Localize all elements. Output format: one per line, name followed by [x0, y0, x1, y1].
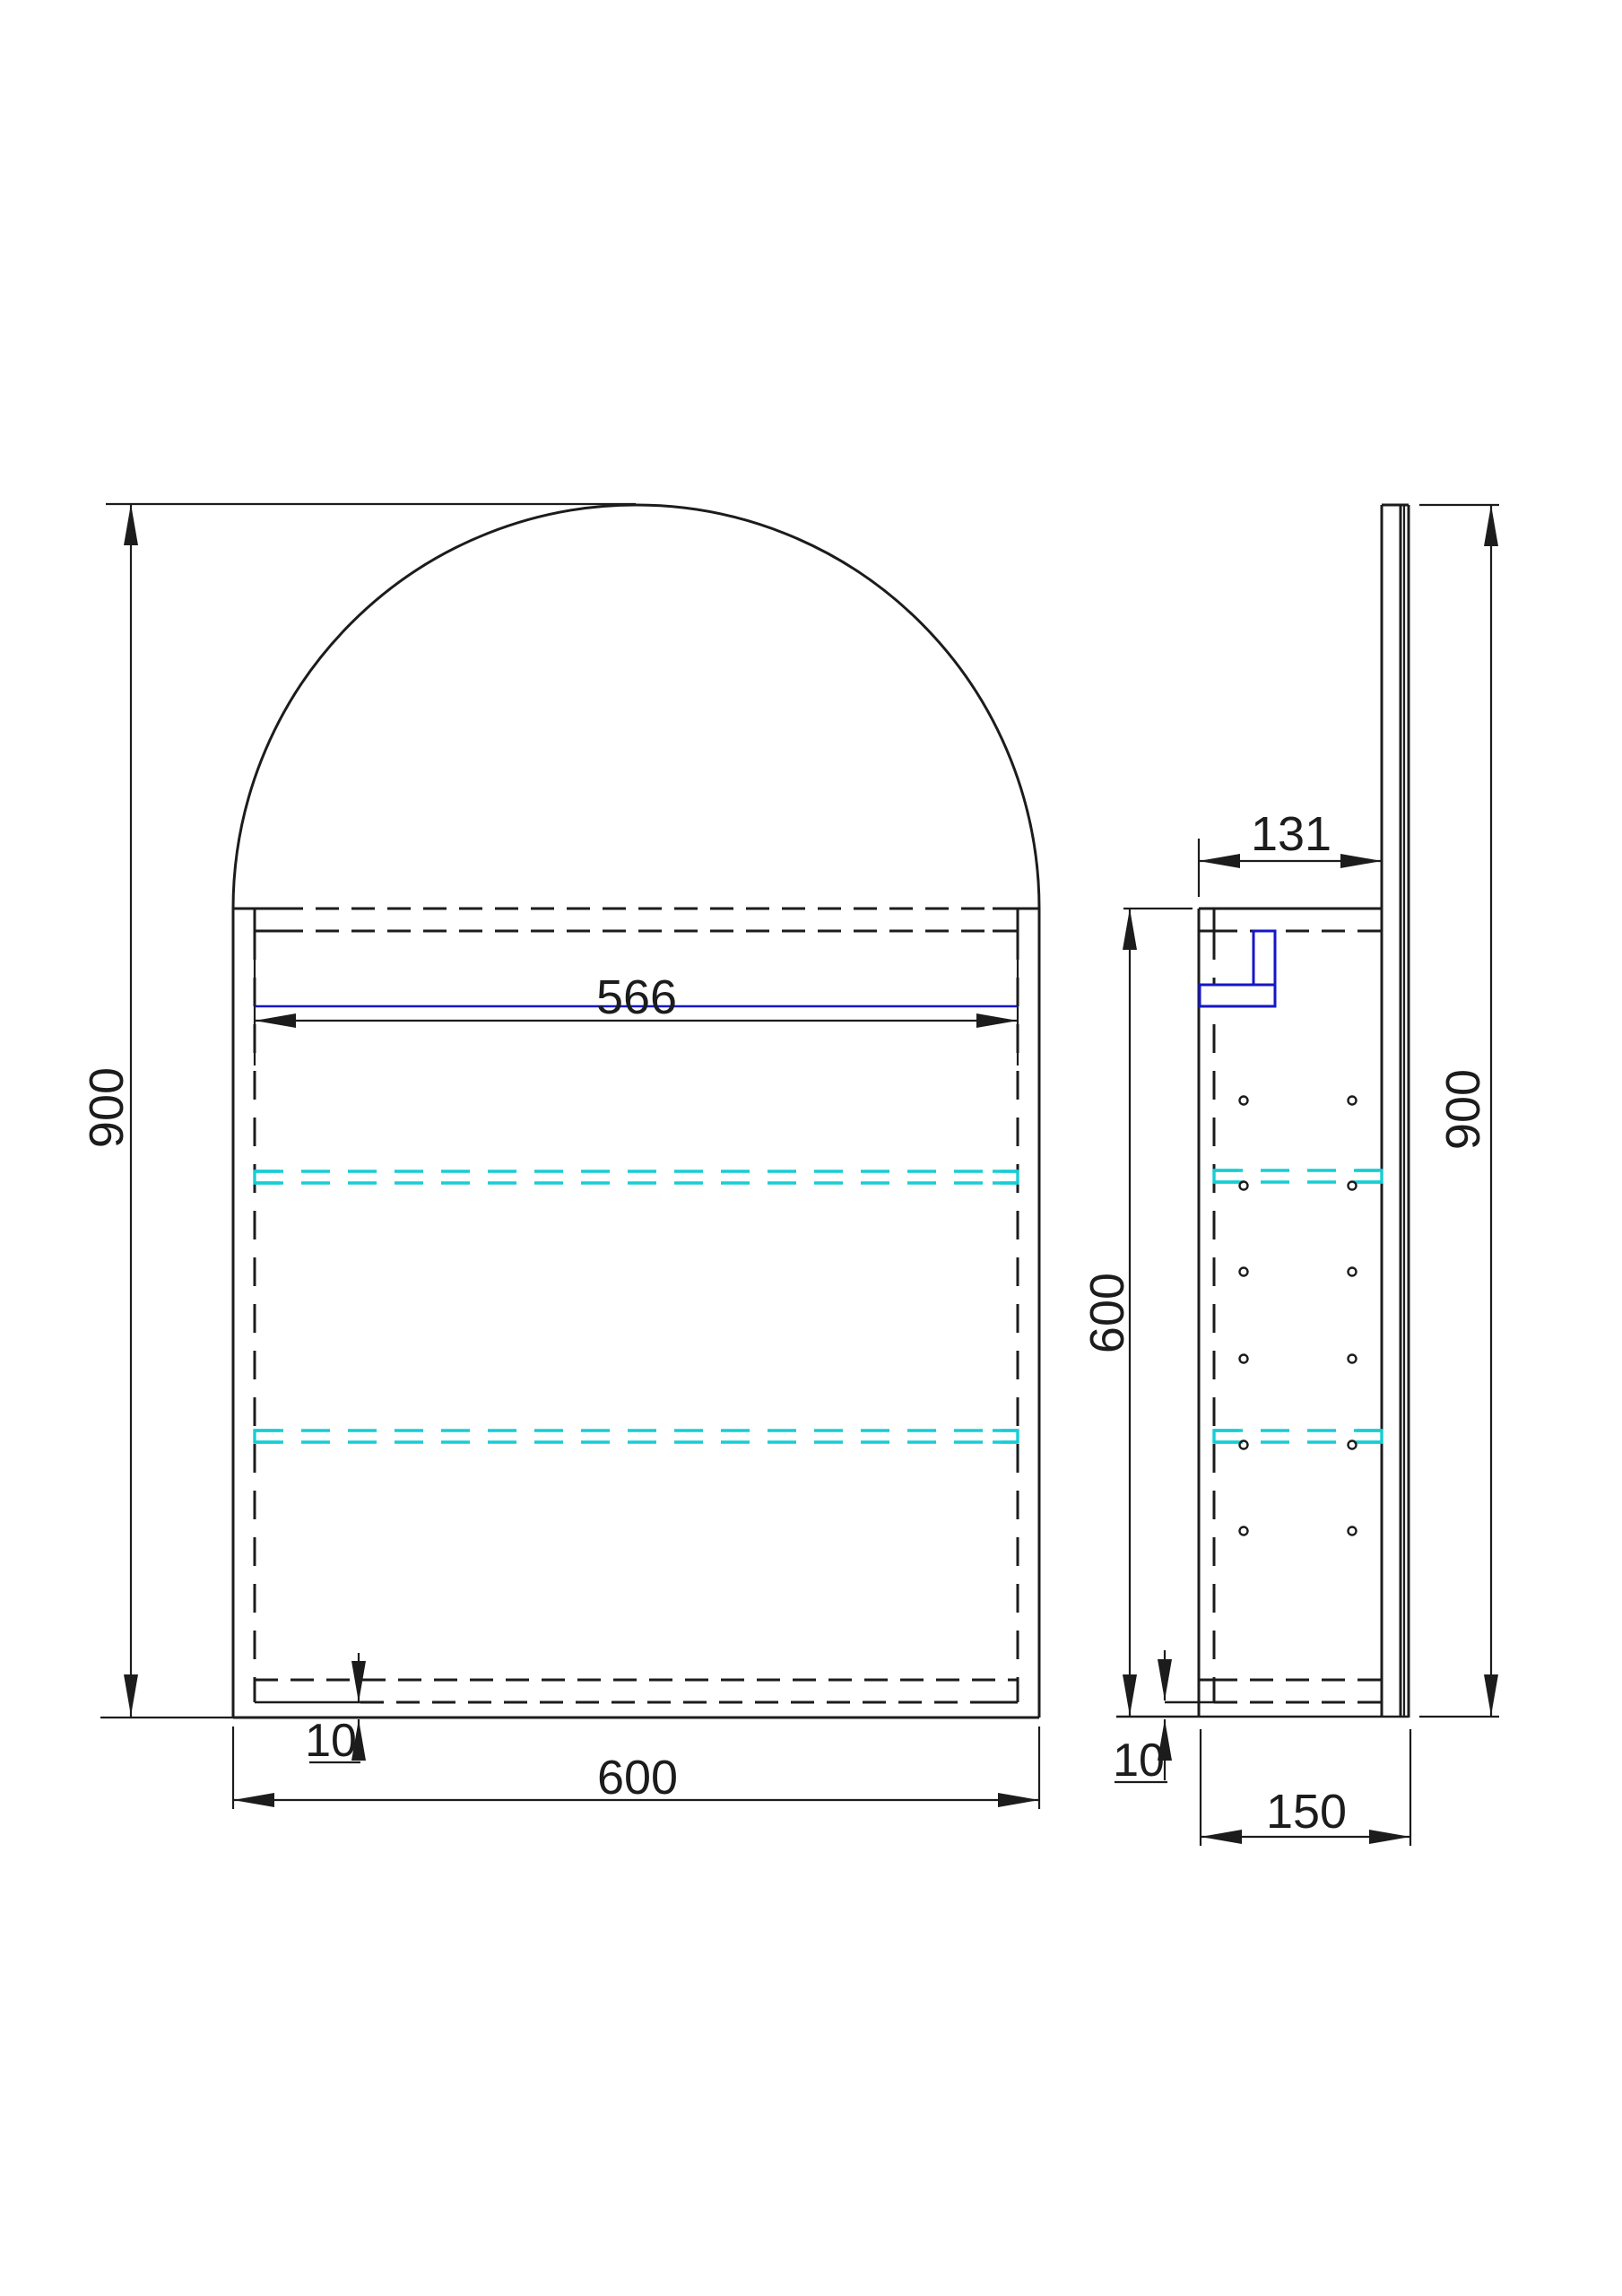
dimension-labels: 566 900 600 10 131 600 900 10 150 — [80, 807, 1490, 1839]
side-shelf-pin-hole — [1349, 1182, 1357, 1190]
side-shelf-2-bracket-right — [1357, 1431, 1382, 1442]
side-inset-arrow-down — [1158, 1659, 1172, 1700]
side-shelf-pin-hole — [1349, 1097, 1357, 1105]
dim-label-front-height: 900 — [80, 1067, 134, 1148]
dim-label-front-width: 600 — [597, 1751, 678, 1805]
side-shelf-pin-hole — [1240, 1268, 1248, 1276]
side-box-height-arrow-down — [1123, 1674, 1137, 1716]
side-shelf-1-bracket-right — [1357, 1170, 1382, 1182]
side-box-height-arrow-up — [1123, 909, 1137, 950]
drawing-linework — [100, 504, 1499, 1846]
side-shelf-pin-hole — [1240, 1441, 1248, 1449]
dim-label-front-bottom-inset: 10 — [305, 1715, 357, 1767]
side-height-arrow-up — [1484, 505, 1498, 546]
side-shelf-pin-hole — [1240, 1355, 1248, 1363]
side-shelf-pin-hole — [1349, 1355, 1357, 1363]
dim-label-side-top-depth: 131 — [1251, 807, 1331, 861]
side-shelf-pin-hole — [1240, 1182, 1248, 1190]
dim-label-side-height: 900 — [1436, 1069, 1490, 1150]
front-inner-width-arrow-right — [976, 1013, 1018, 1028]
drawing-sheet: 566 900 600 10 131 600 900 10 150 — [0, 0, 1622, 2296]
side-depth-arrow-right — [1369, 1830, 1410, 1844]
front-inset-arrow-down — [351, 1661, 366, 1702]
side-hinge-bracket-horizontal — [1200, 985, 1275, 1006]
side-hinge-bracket-vertical — [1253, 931, 1275, 985]
side-shelf-pin-hole — [1349, 1441, 1357, 1449]
side-shelf-pin-hole — [1349, 1268, 1357, 1276]
dim-label-side-depth: 150 — [1266, 1785, 1347, 1839]
side-depth-arrow-left — [1201, 1830, 1242, 1844]
front-door-arch — [233, 505, 1039, 909]
side-shelf-pin-hole — [1349, 1527, 1357, 1535]
front-shelf-2-bracket-right — [993, 1431, 1018, 1442]
front-height-arrow-up — [124, 504, 138, 545]
front-shelf-1-bracket-left — [255, 1171, 280, 1183]
side-shelf-2-bracket-left — [1214, 1431, 1239, 1442]
front-shelf-2-bracket-left — [255, 1431, 280, 1442]
side-height-arrow-down — [1484, 1674, 1498, 1716]
dim-label-side-bottom-inset: 10 — [1113, 1735, 1165, 1787]
front-width-arrow-left — [233, 1793, 274, 1807]
side-shelf-1-bracket-left — [1214, 1170, 1239, 1182]
side-top-depth-arrow-left — [1199, 854, 1240, 868]
dim-label-front-inner-width: 566 — [596, 970, 677, 1024]
side-shelf-pin-hole — [1240, 1097, 1248, 1105]
front-width-arrow-right — [998, 1793, 1039, 1807]
side-shelf-pin-hole — [1240, 1527, 1248, 1535]
front-height-arrow-down — [124, 1674, 138, 1716]
front-shelf-1-bracket-right — [993, 1171, 1018, 1183]
cabinet-technical-drawing: 566 900 600 10 131 600 900 10 150 — [0, 0, 1622, 2296]
dim-label-side-box-height: 600 — [1080, 1273, 1134, 1353]
front-inner-width-arrow-left — [255, 1013, 296, 1028]
side-top-depth-arrow-right — [1340, 854, 1382, 868]
